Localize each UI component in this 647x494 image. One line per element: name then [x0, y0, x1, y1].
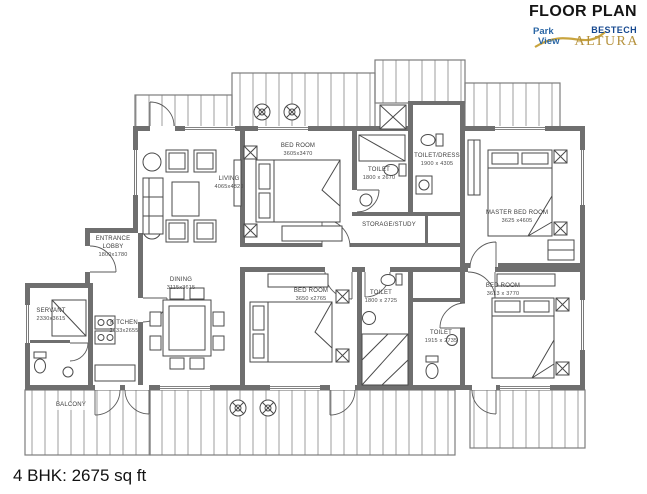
room-label-dining: DINING3115x3615: [167, 277, 196, 292]
room-label-balcony: BALCONY: [54, 402, 88, 410]
dining-furniture: [150, 288, 224, 369]
page-title: FLOOR PLAN: [529, 3, 637, 21]
room-label-toilet-lower: TOILET1915 x 2735: [425, 330, 457, 345]
room-label-master-bedroom: MASTER BED ROOM3625 x4605: [486, 210, 548, 225]
room-label-bedroom-top: BED ROOM3605x3470: [281, 143, 315, 158]
park-view-wordmark: Park View: [533, 27, 559, 47]
living-furniture: [143, 150, 241, 242]
room-label-servant: SERVANT2330x3615: [36, 308, 65, 323]
room-label-storage-study: STORAGE/STUDY: [362, 222, 416, 230]
room-label-toilet-mid: TOILET1800 x 2725: [365, 290, 397, 305]
room-label-toilet-dress: TOILET/DRESS1900 x 4305: [414, 153, 460, 168]
floor-plan-page: LIVING4065x4820 BED ROOM3605x3470 TOILET…: [0, 0, 647, 494]
master-bedroom-furniture: [468, 140, 574, 260]
room-label-toilet-top: TOILET1800 x 2670: [363, 167, 395, 182]
altura-wordmark: ALTURA: [575, 34, 640, 50]
room-label-living: LIVING4065x4820: [214, 176, 243, 191]
room-label-entrance-lobby: ENTRANCE LOBBY1800x1780: [88, 236, 138, 259]
room-label-bedroom-right: BED ROOM3613 x 3770: [486, 283, 520, 298]
area-summary: 4 BHK: 2675 sq ft: [13, 466, 146, 486]
room-label-kitchen: KITCHEN2433x2655: [109, 320, 138, 335]
bedroom-top-furniture: [244, 146, 342, 241]
room-label-bedroom-mid: BED ROOM3650 x2765: [294, 288, 328, 303]
bestech-altura-logo: Park View BESTECH ALTURA: [531, 24, 639, 54]
